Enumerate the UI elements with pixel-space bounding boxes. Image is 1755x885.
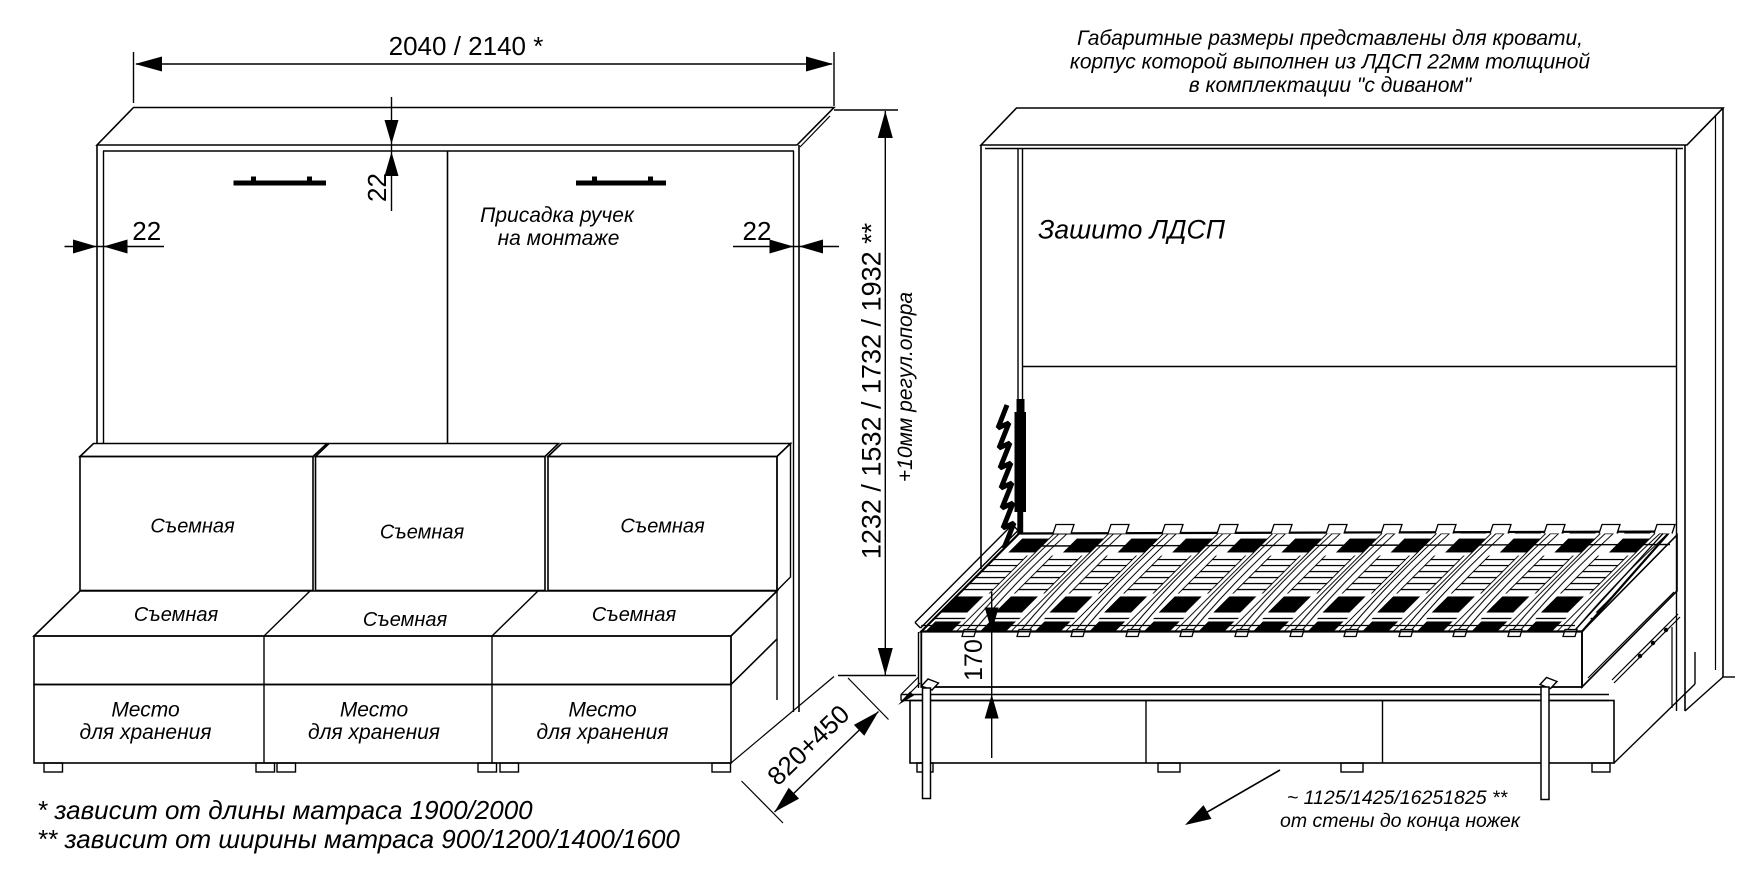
svg-text:Съемная: Съемная <box>620 516 705 538</box>
svg-text:+10мм регул.опора: +10мм регул.опора <box>894 292 917 482</box>
svg-text:* зависит от длины матраса 19: * зависит от длины матраса 1900/2000 <box>37 795 533 825</box>
svg-text:22: 22 <box>362 173 392 202</box>
svg-text:корпус которой выполнен из ЛДС: корпус которой выполнен из ЛДСП 22мм тол… <box>1070 51 1590 74</box>
svg-text:Съемная: Съемная <box>363 609 448 631</box>
svg-text:Место: Место <box>340 699 409 722</box>
svg-text:22: 22 <box>743 216 772 246</box>
svg-text:Присадка ручек: Присадка ручек <box>480 204 635 227</box>
svg-text:1232 / 1532 / 1732 / 1932 **: 1232 / 1532 / 1732 / 1932 ** <box>857 222 887 559</box>
svg-text:в комплектации "с диваном": в комплектации "с диваном" <box>1189 74 1473 97</box>
svg-text:** зависит от ширины матраса 9: ** зависит от ширины матраса 900/1200/14… <box>37 824 680 854</box>
svg-text:Зашито ЛДСП: Зашито ЛДСП <box>1038 215 1226 245</box>
svg-text:Габаритные размеры представлен: Габаритные размеры представлены для кров… <box>1077 27 1583 50</box>
svg-text:для хранения: для хранения <box>536 721 668 744</box>
svg-text:Съемная: Съемная <box>134 604 219 626</box>
svg-text:Съемная: Съемная <box>592 604 677 626</box>
svg-text:Съемная: Съемная <box>380 522 465 544</box>
svg-text:~ 1125/1425/16251825 **: ~ 1125/1425/16251825 ** <box>1287 787 1509 809</box>
svg-text:на монтаже: на монтаже <box>498 227 620 250</box>
svg-text:от стены до конца ножек: от стены до конца ножек <box>1280 810 1521 832</box>
svg-text:2040 / 2140 *: 2040 / 2140 * <box>389 31 544 61</box>
svg-text:Место: Место <box>568 699 637 722</box>
svg-text:для хранения: для хранения <box>308 721 440 744</box>
svg-text:170: 170 <box>960 639 988 681</box>
svg-text:22: 22 <box>132 216 161 246</box>
svg-text:Место: Место <box>111 699 180 722</box>
svg-text:для хранения: для хранения <box>79 721 211 744</box>
svg-text:Съемная: Съемная <box>150 516 235 538</box>
